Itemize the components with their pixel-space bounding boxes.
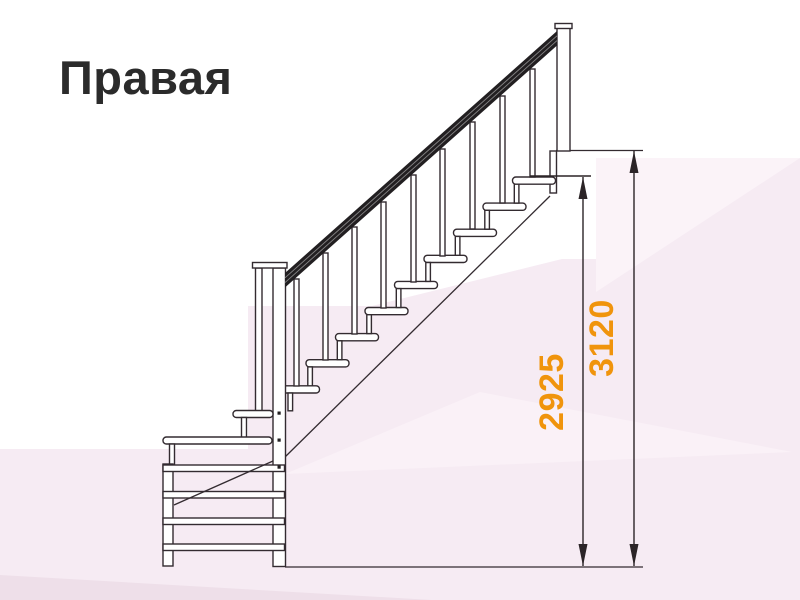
riser-support <box>288 393 293 411</box>
baluster <box>500 96 505 203</box>
central-post-cap <box>253 263 288 269</box>
winder-tread-support <box>242 418 247 438</box>
riser-support <box>396 289 401 308</box>
baluster <box>411 175 416 282</box>
stringer-mount-plate <box>550 151 557 193</box>
tread <box>454 229 497 236</box>
bolt-icon <box>278 439 281 442</box>
handrail-texture-line <box>285 36 557 278</box>
frame-rail <box>163 465 285 472</box>
handrail <box>285 31 557 288</box>
baluster <box>470 122 475 229</box>
riser-support <box>367 315 372 334</box>
tread <box>306 360 349 367</box>
bolt-icon <box>278 466 281 469</box>
frame-rail <box>163 518 285 525</box>
riser-support <box>426 263 431 282</box>
riser-support <box>455 236 460 255</box>
dimension-value-stair-height: 2925 <box>533 353 571 431</box>
dimension-value-total-height: 3120 <box>583 299 621 377</box>
tread <box>483 203 526 210</box>
diagram-title: Правая <box>59 54 232 101</box>
baluster <box>381 202 386 308</box>
top-post <box>555 24 572 152</box>
bolt-icon <box>278 412 281 415</box>
background-pattern <box>0 158 800 600</box>
staircase-diagram-page: 2925 3120 Правая <box>0 0 800 600</box>
frame-rail <box>163 544 285 551</box>
frame-rail <box>163 492 285 499</box>
baluster <box>530 69 535 177</box>
riser-support <box>308 367 313 386</box>
riser-support <box>485 210 490 229</box>
tread <box>513 177 556 184</box>
top-post-body <box>557 28 570 151</box>
baluster <box>294 279 299 386</box>
winder-tread <box>233 411 273 418</box>
arrow-up-icon <box>579 177 588 199</box>
baluster <box>352 227 357 334</box>
handrail-band <box>285 31 557 288</box>
central-post-front-member <box>256 268 263 411</box>
handrail-texture-line <box>285 41 557 283</box>
winder-tread <box>163 437 272 444</box>
baluster <box>323 253 328 360</box>
riser-support <box>514 184 519 203</box>
riser-support <box>337 341 342 360</box>
baluster <box>440 149 445 256</box>
winder-tread-support <box>170 444 175 465</box>
top-post-cap <box>555 24 572 29</box>
